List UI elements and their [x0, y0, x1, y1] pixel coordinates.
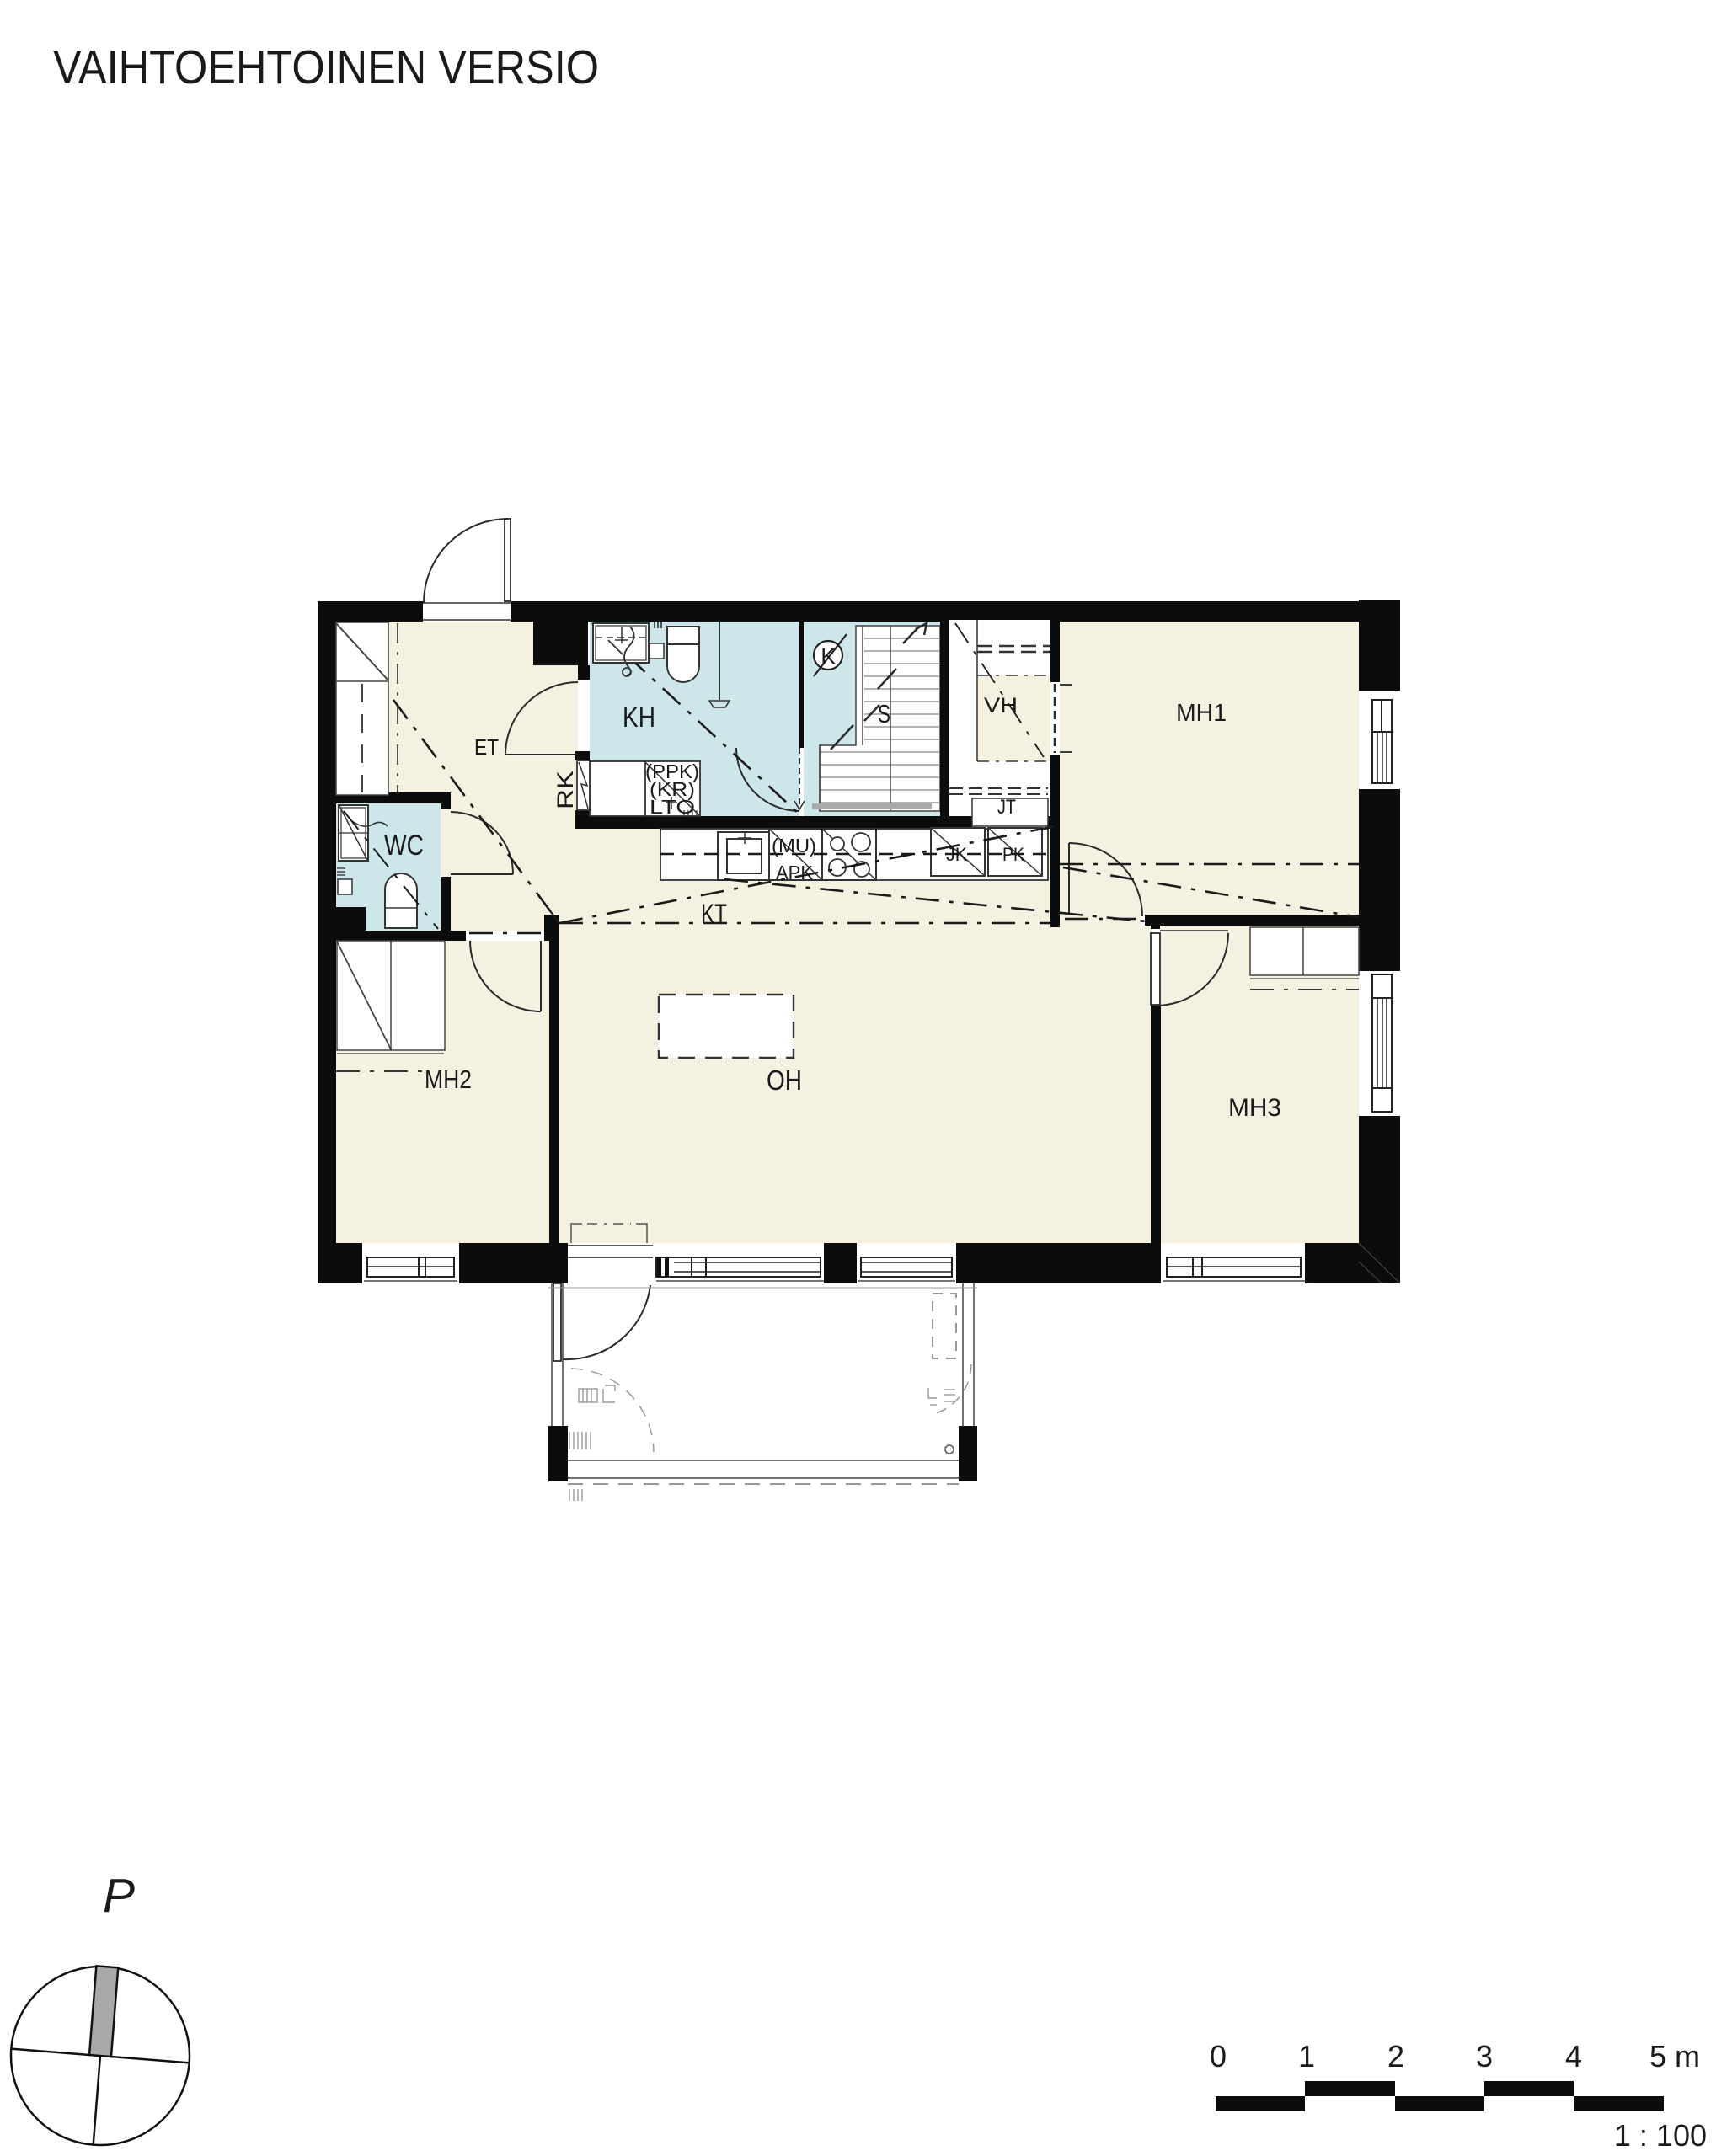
svg-text:KH: KH [623, 702, 655, 733]
svg-text:P: P [103, 1869, 135, 1923]
svg-text:JK: JK [946, 844, 967, 865]
svg-text:0: 0 [1210, 2039, 1227, 2073]
svg-text:ET: ET [474, 734, 499, 760]
svg-text:MH2: MH2 [425, 1065, 472, 1094]
svg-text:LTO: LTO [650, 796, 695, 818]
svg-text:OH: OH [767, 1065, 802, 1096]
svg-text:APK: APK [776, 862, 814, 883]
svg-text:RK: RK [553, 771, 578, 809]
svg-text:WC: WC [384, 830, 424, 862]
svg-text:5 m: 5 m [1649, 2039, 1700, 2073]
svg-text:(MU): (MU) [772, 835, 816, 857]
svg-text:1: 1 [1298, 2039, 1315, 2073]
svg-text:VH: VH [984, 694, 1018, 718]
svg-text:1 : 100: 1 : 100 [1614, 2118, 1707, 2153]
svg-text:PK: PK [1002, 844, 1024, 865]
svg-text:MH1: MH1 [1176, 700, 1227, 727]
svg-text:3: 3 [1476, 2039, 1493, 2073]
svg-text:K: K [821, 643, 836, 669]
svg-text:S: S [878, 699, 890, 728]
svg-text:VAIHTOEHTOINEN VERSIO: VAIHTOEHTOINEN VERSIO [53, 40, 599, 94]
svg-text:2: 2 [1387, 2039, 1404, 2073]
svg-text:MH3: MH3 [1228, 1094, 1281, 1122]
svg-text:4: 4 [1565, 2039, 1582, 2073]
svg-text:JT: JT [997, 796, 1016, 819]
svg-text:KT: KT [701, 899, 727, 929]
